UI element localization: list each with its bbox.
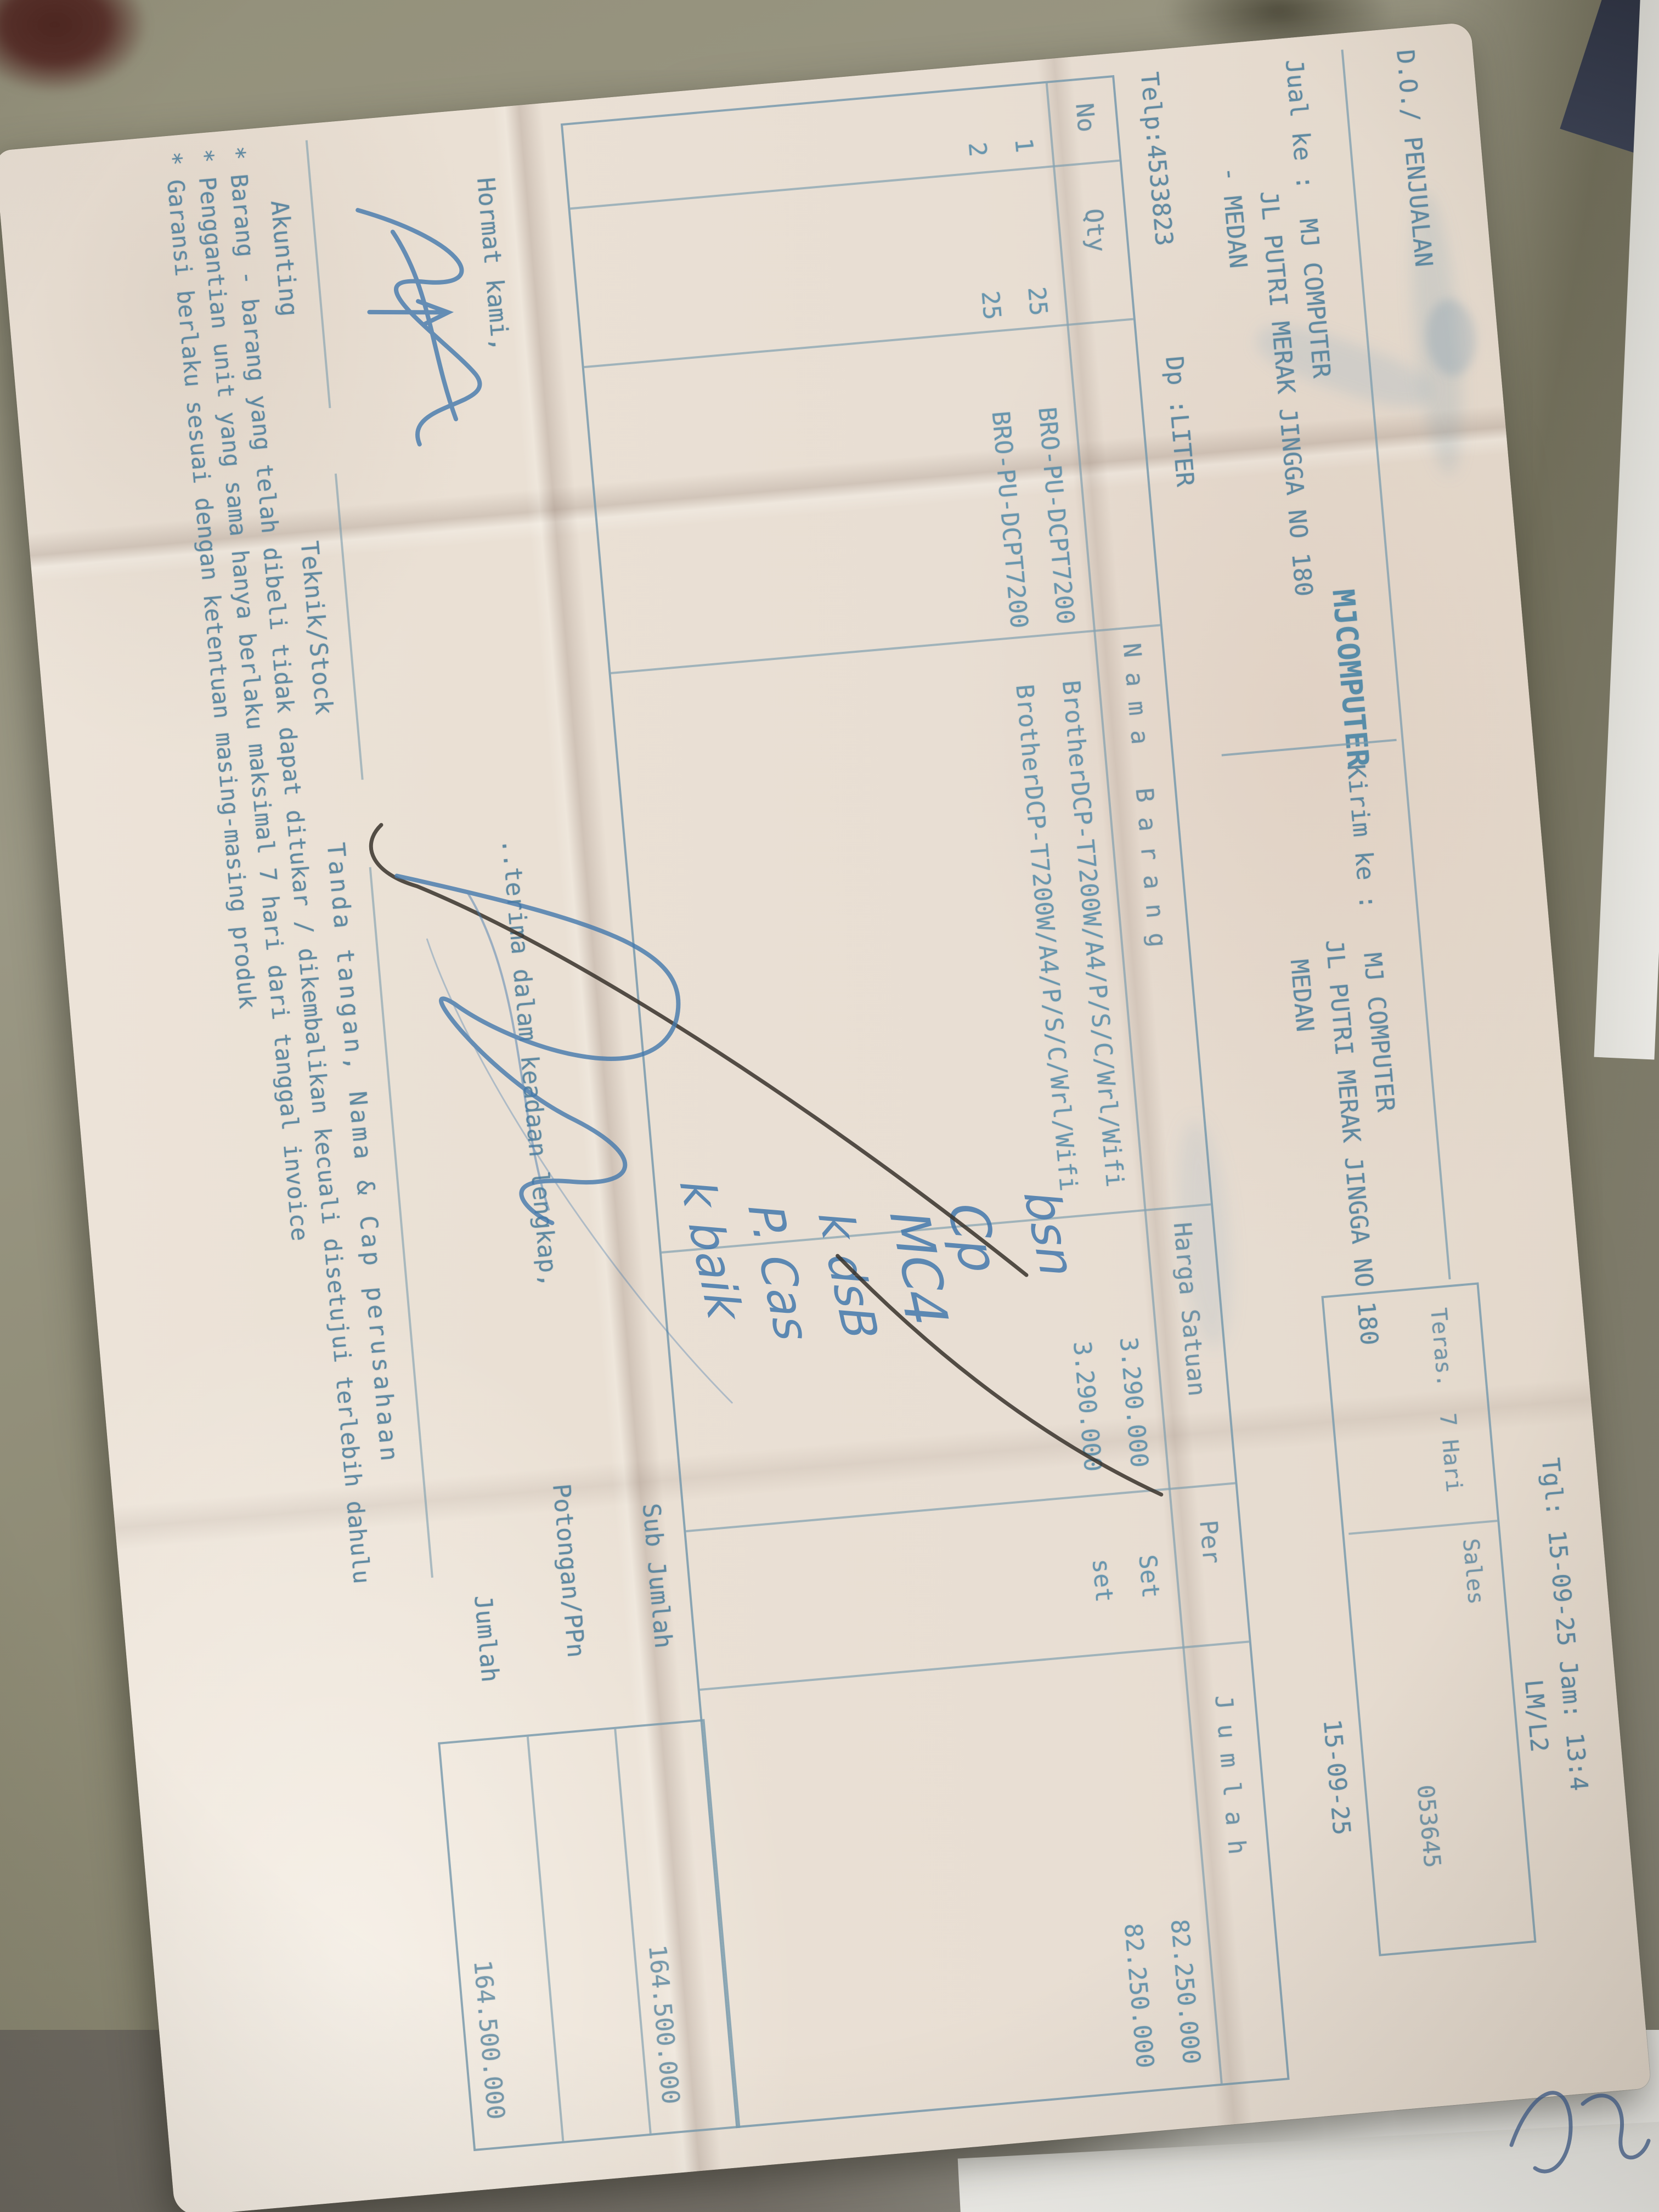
photo-of-document: D.O./ PENJUALAN MJCOMPUTER Tgl: 15-09-25…: [0, 0, 1659, 2212]
signature-scribble-tanda: [0, 22, 1651, 2212]
surface-maroon-corner: [0, 0, 148, 93]
paper: D.O./ PENJUALAN MJCOMPUTER Tgl: 15-09-25…: [0, 22, 1651, 2212]
handwriting-corner-scribble: [1487, 2052, 1659, 2205]
